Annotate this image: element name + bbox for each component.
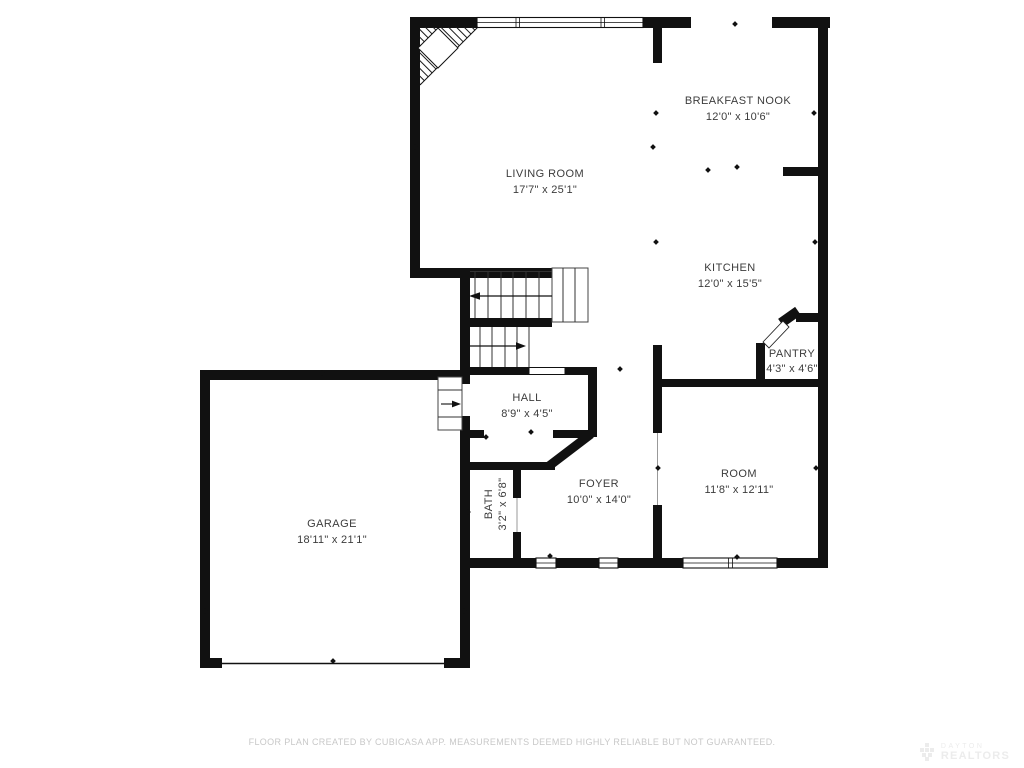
wall-garage-bottom-left	[200, 658, 222, 668]
wall-top-left	[410, 17, 478, 28]
room-label-garage: GARAGE 18'11" x 21'1"	[297, 517, 367, 548]
room-name: KITCHEN	[698, 261, 762, 277]
tick-mark	[813, 465, 819, 471]
wall-stairs-mid	[466, 318, 552, 327]
room-label-bath: BATH 3'2" x 6'8"	[482, 460, 510, 548]
wall-bottom-d	[777, 558, 828, 568]
wall-bath-top	[466, 462, 555, 470]
wall-top-mid	[643, 17, 691, 28]
stairs-landing	[552, 268, 588, 322]
tick-mark	[811, 110, 817, 116]
watermark-line2: REALTORS	[941, 751, 1010, 762]
footer-disclaimer: FLOOR PLAN CREATED BY CUBICASA APP. MEAS…	[0, 737, 1024, 747]
wall-living-bottom	[410, 268, 553, 278]
room-label-breakfast-nook: BREAKFAST NOOK 12'0" x 10'6"	[685, 94, 791, 125]
cased-opening-hall	[529, 368, 565, 375]
watermark-line1: DAYTON	[941, 743, 1010, 750]
room-label-foyer: FOYER 10'0" x 14'0"	[567, 477, 631, 508]
room-name: GARAGE	[297, 517, 367, 533]
tick-mark	[528, 429, 534, 435]
realtors-watermark: DAYTON REALTORS	[917, 742, 1010, 762]
wall-garage-top	[200, 370, 467, 380]
wall-room-top	[655, 379, 828, 387]
wall-nook-stub	[653, 17, 662, 63]
wall-bottom-a	[460, 558, 537, 568]
wall-bottom-c	[617, 558, 684, 568]
wall-foyer-room-upper	[653, 345, 662, 433]
wall-garage-left	[200, 370, 210, 668]
floor-plan-drawing	[0, 0, 1024, 768]
wall-bath-right-lower	[513, 532, 521, 562]
tick-mark	[655, 465, 661, 471]
room-dimensions: 4'3" x 4'6"	[766, 362, 817, 377]
wall-hall-top-left	[468, 367, 529, 375]
tick-mark	[734, 164, 740, 170]
pantry-door-leaf	[763, 321, 789, 348]
room-name: HALL	[501, 391, 552, 407]
watermark-text: DAYTON REALTORS	[941, 743, 1010, 762]
room-name: BREAKFAST NOOK	[685, 94, 791, 110]
tick-mark	[812, 239, 818, 245]
wall-west-lower	[460, 416, 470, 668]
tick-mark	[653, 239, 659, 245]
wall-pantry-left	[756, 343, 765, 383]
room-label-hall: HALL 8'9" x 4'5"	[501, 391, 552, 422]
tick-mark	[705, 167, 711, 173]
wall-hall-bottom-left	[466, 430, 484, 438]
room-dimensions: 12'0" x 10'6"	[685, 110, 791, 126]
room-dimensions: 18'11" x 21'1"	[297, 533, 367, 549]
fireplace	[418, 27, 478, 85]
wall-bath-right-upper	[513, 462, 521, 498]
room-name: PANTRY	[766, 347, 817, 362]
wall-foyer-diagonal	[549, 434, 591, 466]
room-dimensions: 8'9" x 4'5"	[501, 407, 552, 423]
wall-foyer-room-lower	[653, 505, 662, 560]
tick-mark	[617, 366, 623, 372]
room-name: ROOM	[704, 467, 773, 483]
room-label-kitchen: KITCHEN 12'0" x 15'5"	[698, 261, 762, 292]
tick-mark	[483, 434, 489, 440]
tick-mark	[653, 110, 659, 116]
wall-right-exterior	[818, 17, 828, 568]
room-name: BATH	[482, 460, 496, 548]
room-dimensions: 17'7" x 25'1"	[506, 183, 584, 199]
floor-plan-page: LIVING ROOM 17'7" x 25'1" BREAKFAST NOOK…	[0, 0, 1024, 768]
tick-mark	[732, 21, 738, 27]
room-dimensions: 10'0" x 14'0"	[567, 493, 631, 509]
room-dimensions: 3'2" x 6'8"	[496, 460, 510, 548]
room-name: LIVING ROOM	[506, 167, 584, 183]
room-name: FOYER	[567, 477, 631, 493]
arrow-down-head	[516, 342, 526, 350]
room-label-living-room: LIVING ROOM 17'7" x 25'1"	[506, 167, 584, 198]
room-label-room: ROOM 11'8" x 12'11"	[704, 467, 773, 498]
room-label-pantry: PANTRY 4'3" x 4'6"	[766, 347, 817, 376]
tick-mark	[650, 144, 656, 150]
realtors-logo-icon	[917, 742, 937, 762]
room-dimensions: 11'8" x 12'11"	[704, 483, 773, 499]
room-dimensions: 12'0" x 15'5"	[698, 277, 762, 293]
wall-kitchen-stub	[783, 167, 818, 176]
wall-bottom-b	[556, 558, 600, 568]
